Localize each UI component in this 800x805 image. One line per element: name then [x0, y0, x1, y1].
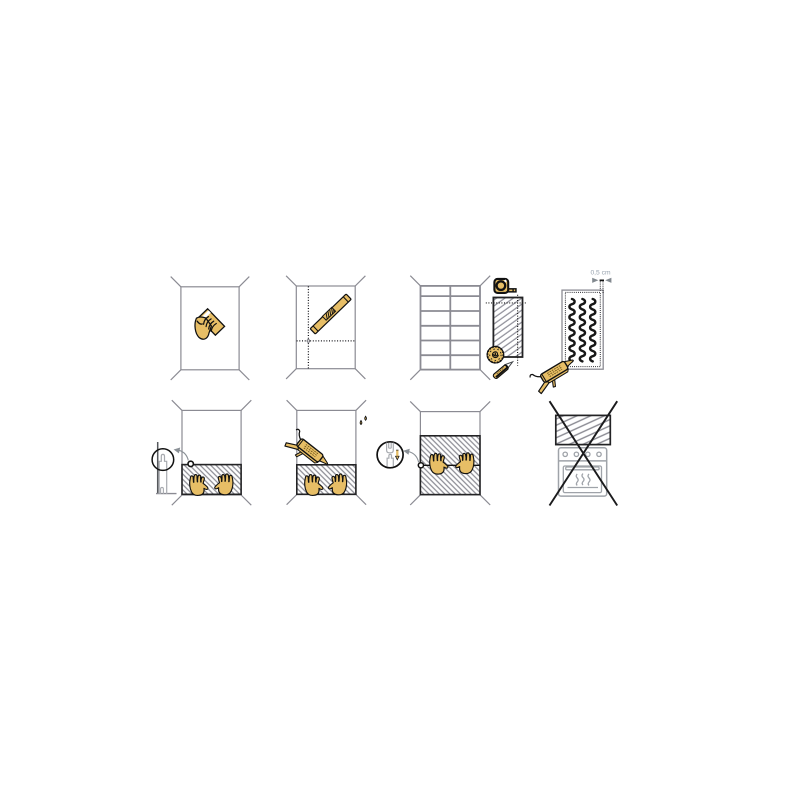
svg-text:0,5 cm: 0,5 cm	[590, 270, 610, 277]
